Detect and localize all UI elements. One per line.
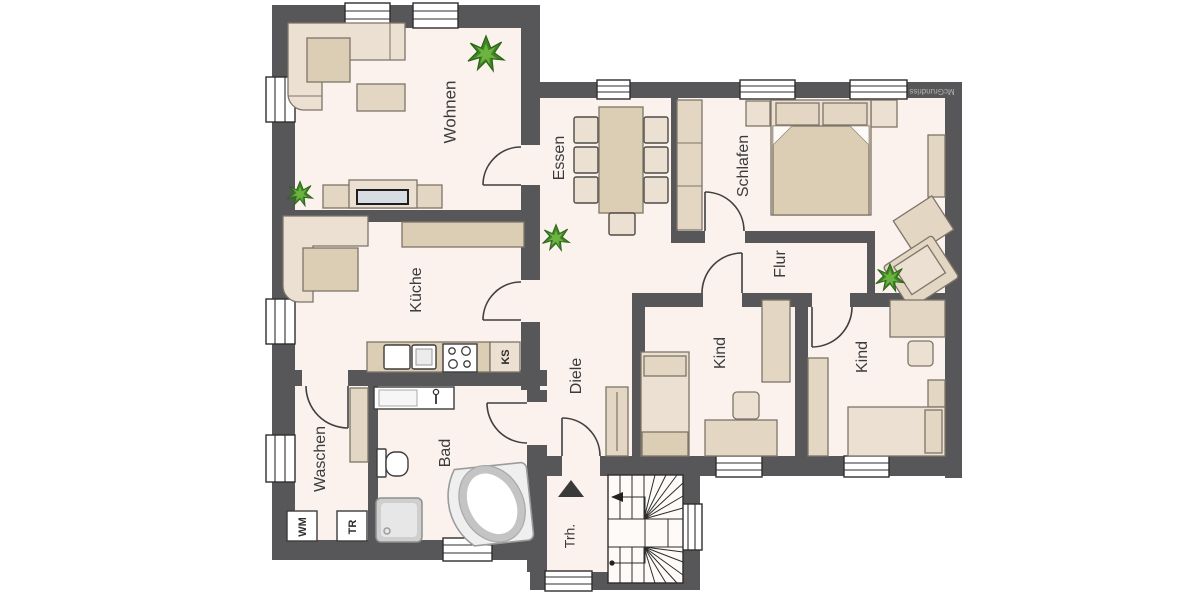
tall-cabinet xyxy=(350,388,368,462)
shower xyxy=(376,498,422,542)
sink xyxy=(384,345,410,369)
room-label-kind1: Kind xyxy=(712,337,729,369)
tall-cabinet xyxy=(677,100,702,230)
toilet xyxy=(377,449,408,477)
shelf xyxy=(928,380,945,407)
desk xyxy=(890,300,945,337)
nightstand xyxy=(871,100,897,127)
desk xyxy=(705,420,777,456)
sofa-cushion xyxy=(307,38,350,82)
room-label-kueche: Küche xyxy=(408,267,425,312)
appliance-label-ks: KS xyxy=(500,349,512,364)
pillow xyxy=(925,410,942,453)
room-label-essen: Essen xyxy=(551,136,568,180)
room-diele-furniture xyxy=(606,387,628,456)
stove xyxy=(443,344,477,372)
pillow xyxy=(644,356,686,376)
dining-chair xyxy=(644,147,668,173)
staircase xyxy=(608,475,683,583)
dining-chair xyxy=(644,177,668,203)
wardrobe xyxy=(762,300,790,382)
wall-counter xyxy=(402,222,524,247)
dining-chair xyxy=(574,177,598,203)
bench-table xyxy=(303,248,358,291)
blanket xyxy=(773,126,869,215)
dining-chair xyxy=(574,147,598,173)
dining-table xyxy=(599,107,643,213)
window xyxy=(716,456,762,477)
room-label-bad: Bad xyxy=(437,439,454,467)
window xyxy=(597,80,630,99)
room-label-schlafen: Schlafen xyxy=(735,135,752,197)
tv xyxy=(357,190,408,204)
pillow xyxy=(823,103,867,125)
desk-chair xyxy=(733,392,759,419)
dining-chair xyxy=(609,213,635,235)
sink-basin-inner xyxy=(416,349,432,365)
vanity-basin xyxy=(379,390,417,406)
pillow xyxy=(776,103,819,125)
dining-chair xyxy=(574,117,598,143)
blanket xyxy=(642,432,688,456)
appliance-label-tr: TR xyxy=(347,520,359,535)
window xyxy=(681,504,702,550)
window xyxy=(266,299,295,344)
room-label-flur: Flur xyxy=(772,250,789,278)
room-label-trh: Trh. xyxy=(562,524,578,548)
floor-plan-svg: Wohnen Essen Schlafen Küche Flur Diele K… xyxy=(0,0,1200,600)
window xyxy=(844,456,889,477)
window xyxy=(545,571,592,591)
wardrobe xyxy=(928,135,945,197)
room-label-diele: Diele xyxy=(568,358,585,395)
coffee-table xyxy=(357,84,405,111)
dining-chair xyxy=(644,117,668,143)
nightstand xyxy=(746,101,770,126)
room-label-kind2: Kind xyxy=(854,341,871,373)
window xyxy=(266,435,295,482)
window xyxy=(413,3,458,28)
wardrobe xyxy=(808,358,828,456)
window xyxy=(850,80,907,99)
desk-chair xyxy=(908,341,933,366)
room-label-waschen: Waschen xyxy=(312,426,329,492)
window xyxy=(740,80,795,99)
watermark: McGrundriss xyxy=(909,87,954,96)
room-label-wohnen: Wohnen xyxy=(440,80,459,143)
appliance-label-wm: WM xyxy=(297,517,309,537)
floor-plan: Wohnen Essen Schlafen Küche Flur Diele K… xyxy=(0,0,1200,600)
